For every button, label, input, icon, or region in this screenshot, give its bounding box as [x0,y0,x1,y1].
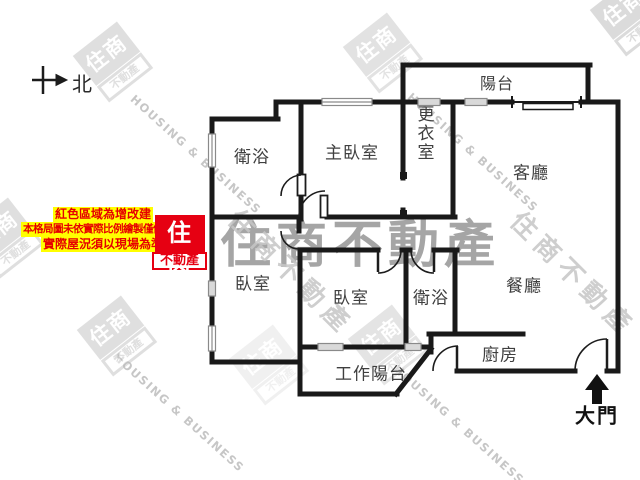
brand-logo-top-text: 住商 [155,215,205,252]
brand-logo: 住商 不動產 [152,215,208,270]
notice-line-1: 紅色區域為增改建 [53,207,153,222]
floor-plan-page: 住商不動產 HOUSING & BUSINESS HOUSING & BUSIN… [0,0,640,480]
badge-layer: 紅色區域為增改建 本格局圖未依實際比例繪製僅供參考 實際屋況須以現場為準 住商 … [0,0,640,480]
notice-line-3: 實際屋況須以現場為準 [41,237,165,252]
brand-logo-bottom-text: 不動產 [152,252,207,270]
